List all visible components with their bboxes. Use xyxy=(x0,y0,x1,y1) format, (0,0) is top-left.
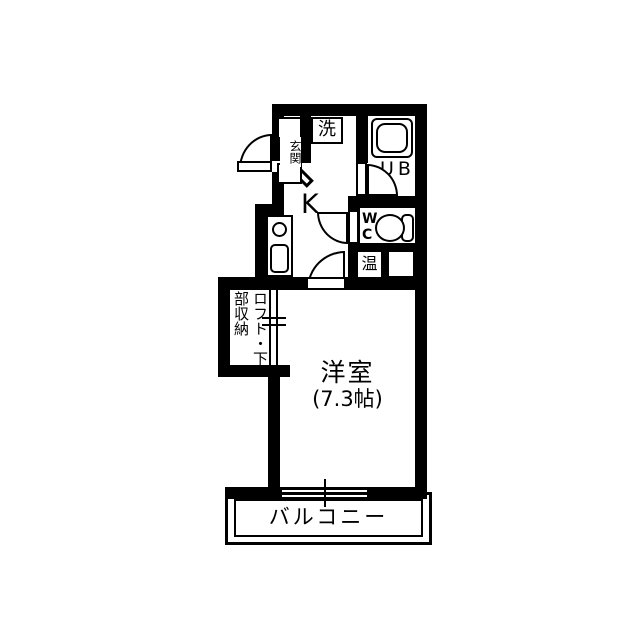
western-room-size: (7.3帖) xyxy=(280,389,415,410)
water-heater-label: 温 xyxy=(359,256,380,272)
kitchen-sink-icon xyxy=(270,244,289,273)
balcony-label: バルコニー xyxy=(234,507,423,528)
stove-burner-icon xyxy=(272,222,287,237)
sliding-door-icon xyxy=(269,288,271,366)
window-mullion-tick-icon xyxy=(316,487,333,489)
kitchen-label: K xyxy=(301,191,319,218)
room-door-leaf-icon xyxy=(306,277,346,290)
sliding-door-tick-icon xyxy=(262,317,286,319)
toilet-bowl-icon xyxy=(375,214,405,242)
wall-right xyxy=(415,104,427,499)
bath-door-leaf-icon xyxy=(356,162,367,196)
entrance-door-leaf-icon xyxy=(237,161,272,172)
pipe-space-box xyxy=(389,252,413,276)
toilet-label-c: C xyxy=(362,227,372,243)
sliding-door-tick-icon xyxy=(262,324,286,326)
western-room-label: 洋室 xyxy=(280,360,415,385)
entrance-label: 玄関 xyxy=(280,137,301,167)
floorplan-canvas: 玄関 洗 UB W C 温 K ロフト・下部収納 洋室 (7.3帖) バルコニー xyxy=(0,0,640,640)
laundry-label: 洗 xyxy=(313,121,341,139)
wall-bath-left xyxy=(356,116,368,163)
sliding-door-icon xyxy=(276,288,278,366)
toilet-door-arc-icon xyxy=(317,212,348,244)
wall-room-left xyxy=(268,365,280,499)
wall-top xyxy=(272,104,427,116)
shoe-cabinet-icon xyxy=(277,117,302,139)
bathtub-inner-icon xyxy=(376,123,408,153)
wall-closet-left xyxy=(218,277,230,377)
toilet-door-leaf-icon xyxy=(348,210,359,244)
loft-storage-label: ロフト・下部収納 xyxy=(231,291,269,371)
